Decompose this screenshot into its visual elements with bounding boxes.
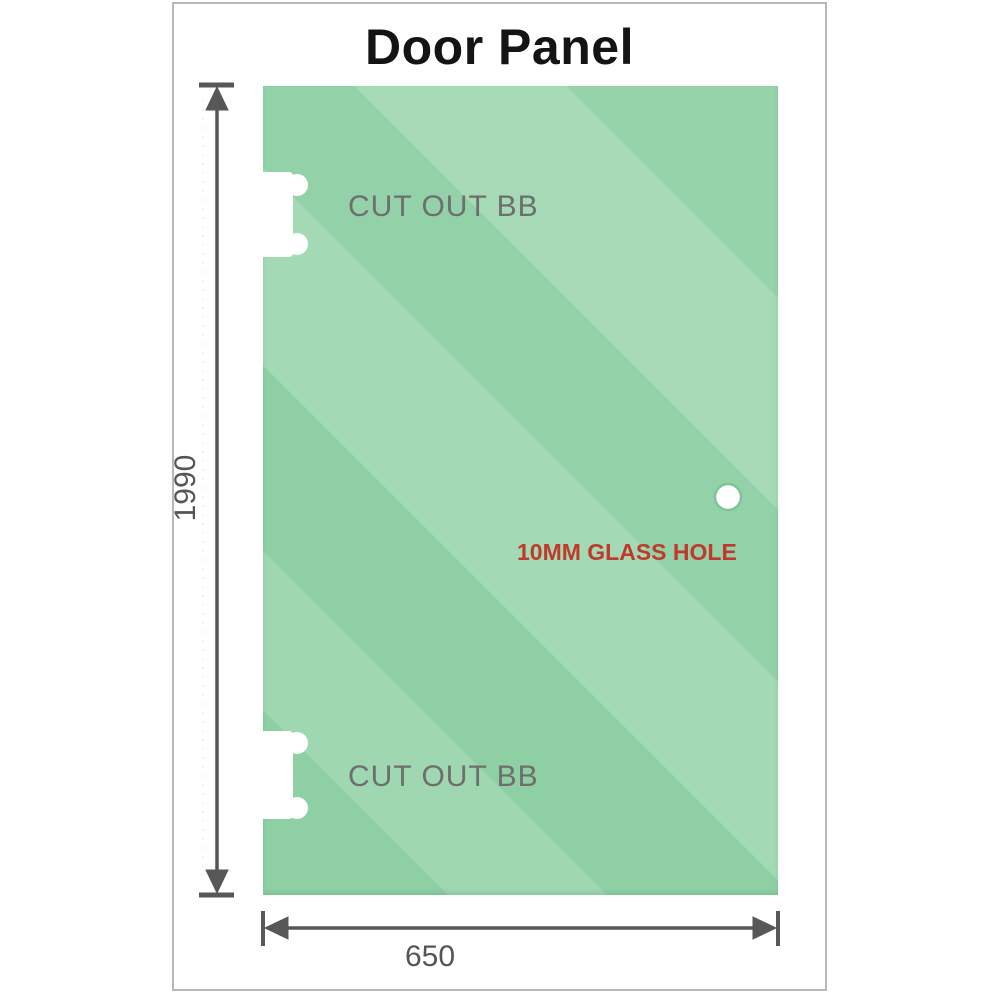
glass-hole-icon — [715, 484, 741, 510]
cutout-bottom-label: CUT OUT BB — [348, 762, 539, 792]
width-dimension-arrow-icon — [263, 911, 778, 946]
arrow-up-icon — [206, 87, 228, 110]
arrow-right-icon — [753, 917, 776, 939]
hinge-cutout-bottom-icon — [260, 731, 308, 819]
diagram-overlay — [0, 0, 1000, 1000]
arrow-left-icon — [265, 917, 288, 939]
arrow-down-icon — [206, 870, 228, 893]
glass-hole-label: 10MM GLASS HOLE — [517, 540, 737, 564]
hinge-cutout-top-icon — [260, 172, 308, 257]
height-dimension-arrow-icon — [199, 85, 234, 895]
width-dimension-value: 650 — [405, 940, 455, 974]
cutout-top-label: CUT OUT BB — [348, 192, 539, 222]
height-dimension-value: 1990 — [169, 455, 203, 522]
drawing-canvas: Door Panel — [0, 0, 1000, 1000]
